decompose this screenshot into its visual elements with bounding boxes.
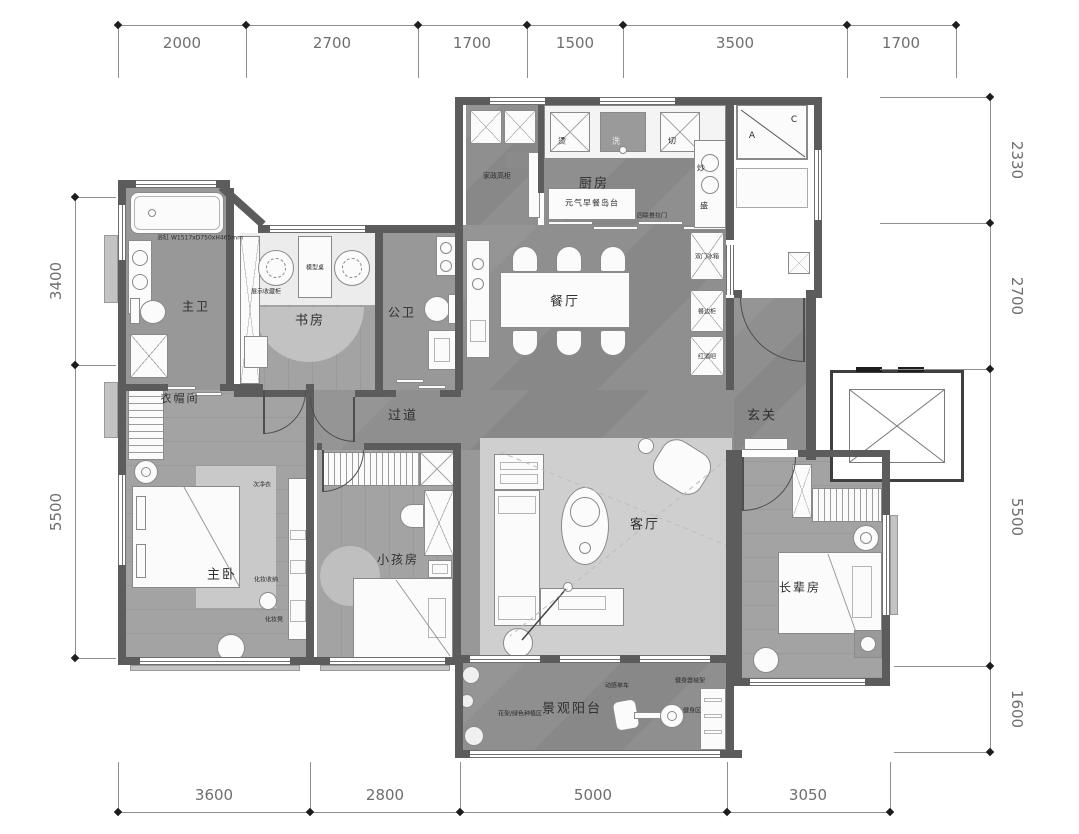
label-makeup-storage: 化妆收纳 bbox=[254, 575, 278, 584]
burner bbox=[701, 176, 719, 194]
water-bar-shelf bbox=[470, 320, 486, 342]
elders-door-leaf bbox=[742, 457, 744, 511]
kids-door-leaf bbox=[322, 450, 324, 492]
label-station-iron: 烫 bbox=[558, 136, 566, 147]
dim-ext bbox=[310, 762, 311, 812]
side-table bbox=[638, 438, 654, 454]
dim-tick bbox=[71, 193, 79, 201]
exterior-sill bbox=[320, 665, 450, 671]
sofa-cushion bbox=[498, 596, 536, 620]
media-drawer bbox=[500, 462, 538, 470]
makeup-stool bbox=[259, 592, 277, 610]
pillow bbox=[136, 496, 146, 530]
shoe-bench bbox=[744, 438, 788, 450]
dim-tick bbox=[114, 808, 122, 816]
dim-tick bbox=[71, 654, 79, 662]
plant-pot bbox=[462, 666, 480, 684]
dim-tick bbox=[306, 808, 314, 816]
dim-ext bbox=[460, 762, 461, 812]
dim-tick bbox=[952, 21, 960, 29]
label-plant-zone: 花架/绿色种植区 bbox=[498, 709, 542, 718]
window bbox=[330, 657, 445, 665]
room-label-living-room: 客厅 bbox=[630, 514, 660, 533]
wall bbox=[726, 298, 734, 390]
label-model-table: 模型桌 bbox=[306, 263, 324, 272]
shower-tray bbox=[434, 338, 450, 362]
dim-tick bbox=[114, 21, 122, 29]
plant-pot bbox=[860, 636, 876, 652]
rattan-chair-inner bbox=[342, 258, 362, 278]
toilet-bowl bbox=[424, 296, 450, 322]
dim-ext bbox=[623, 25, 624, 78]
wall bbox=[734, 290, 742, 298]
dim-label: 3050 bbox=[789, 786, 827, 804]
kitchen-sliding-door-panel bbox=[548, 221, 593, 225]
shower bbox=[130, 334, 168, 378]
dim-label: 1500 bbox=[556, 34, 594, 52]
dim-label: 3600 bbox=[195, 786, 233, 804]
kids-pillow bbox=[428, 598, 446, 638]
basin bbox=[440, 260, 452, 272]
window bbox=[750, 678, 865, 686]
label-sliding-door: 四联推拉门 bbox=[637, 211, 667, 220]
egg-table-inner bbox=[570, 497, 600, 527]
dressing-drawer bbox=[290, 530, 306, 540]
study-door-leaf bbox=[353, 397, 355, 442]
dim-tick bbox=[986, 662, 994, 670]
dim-label: 3500 bbox=[716, 34, 754, 52]
dim-tick bbox=[843, 21, 851, 29]
washer bbox=[550, 112, 590, 152]
elders-pillow bbox=[852, 566, 872, 618]
dim-ext bbox=[880, 369, 990, 370]
dim-label: 5000 bbox=[574, 786, 612, 804]
wall bbox=[317, 443, 322, 450]
kitchen-sliding-door-panel bbox=[593, 226, 638, 230]
room-label-study: 书房 bbox=[295, 310, 325, 329]
window bbox=[136, 180, 216, 188]
dim-tick bbox=[71, 361, 79, 369]
shoe-cabinet bbox=[128, 388, 164, 460]
window bbox=[270, 225, 365, 233]
label-station-serve: 盛 bbox=[700, 201, 708, 212]
plant-pot bbox=[464, 726, 484, 746]
dim-ext bbox=[75, 197, 116, 198]
dim-ext bbox=[527, 25, 528, 78]
dim-label: 1700 bbox=[453, 34, 491, 52]
dining-chair bbox=[600, 330, 626, 356]
dim-line-right bbox=[990, 97, 991, 752]
label-fridge: 双门冰箱 bbox=[695, 252, 719, 261]
wall bbox=[453, 443, 461, 658]
dim-ext bbox=[847, 25, 848, 78]
room-label-kids-room: 小孩房 bbox=[377, 551, 419, 568]
dim-label: 2000 bbox=[163, 34, 201, 52]
kitchen-sliding-door-panel bbox=[638, 221, 683, 225]
wall bbox=[726, 450, 742, 685]
window bbox=[882, 515, 890, 615]
window-sliding-door bbox=[470, 655, 540, 663]
dim-tick bbox=[523, 21, 531, 29]
guest-bath-sliding-door bbox=[418, 385, 446, 389]
elevator-door-mark bbox=[856, 367, 882, 372]
fitness-rack-bar bbox=[704, 698, 722, 702]
laundry-machine bbox=[470, 110, 502, 144]
room-label-master-bath: 主卫 bbox=[182, 298, 210, 315]
dim-label: 5500 bbox=[1008, 498, 1026, 536]
egg-table-small bbox=[579, 542, 591, 554]
dim-ext bbox=[880, 97, 990, 98]
exterior-panel bbox=[104, 235, 118, 303]
dim-ext bbox=[956, 25, 957, 78]
basin bbox=[472, 278, 484, 290]
wall bbox=[306, 384, 314, 658]
media-drawer bbox=[500, 474, 538, 484]
ac-platform bbox=[736, 104, 808, 160]
label-station-fry: 炒 bbox=[697, 163, 705, 174]
label-laundry-clothes: 次净衣 bbox=[253, 480, 271, 489]
faucet bbox=[619, 146, 627, 154]
study-cabinet bbox=[244, 336, 268, 368]
fitness-rack-bar bbox=[704, 714, 722, 718]
label-station-cut: 切 bbox=[668, 136, 676, 147]
sofa-cushion bbox=[498, 496, 536, 514]
floor-lamp-base bbox=[503, 628, 533, 658]
toilet-tank bbox=[130, 298, 140, 324]
window bbox=[118, 205, 126, 260]
dim-label: 2800 bbox=[366, 786, 404, 804]
sink bbox=[132, 274, 148, 290]
dim-tick bbox=[414, 21, 422, 29]
label-bathtub-spec: 浴缸 W1517xD750xH465mm bbox=[157, 233, 243, 242]
room-label-cloakroom: 衣帽间 bbox=[161, 390, 200, 406]
dining-chair bbox=[512, 330, 538, 356]
window bbox=[490, 97, 545, 105]
dim-label: 3400 bbox=[47, 262, 65, 300]
wall bbox=[726, 105, 734, 240]
dining-chair bbox=[600, 246, 626, 272]
window bbox=[600, 97, 675, 105]
basin bbox=[440, 242, 452, 254]
room-label-elders-room: 长辈房 bbox=[779, 579, 821, 596]
room-label-balcony: 景观阳台 bbox=[542, 698, 602, 717]
dim-label: 1700 bbox=[882, 34, 920, 52]
dim-label: 5500 bbox=[47, 493, 65, 531]
window bbox=[118, 475, 126, 565]
dining-chair bbox=[556, 246, 582, 272]
laundry-machine bbox=[504, 110, 536, 144]
dim-ext bbox=[75, 658, 116, 659]
floor-lamp-shade bbox=[563, 582, 573, 592]
window-balcony-rail bbox=[470, 750, 720, 758]
dim-ext bbox=[246, 25, 247, 78]
label-display-cabinet: 展示收藏柜 bbox=[251, 287, 281, 296]
wall bbox=[375, 233, 383, 390]
dim-ext bbox=[894, 752, 990, 753]
label-ac-a: A bbox=[749, 131, 755, 141]
media-cabinet bbox=[494, 454, 544, 490]
window bbox=[140, 657, 290, 665]
exterior-sill bbox=[130, 665, 300, 671]
pillow bbox=[136, 544, 146, 578]
rattan-chair-inner bbox=[266, 258, 286, 278]
wall bbox=[440, 390, 461, 397]
dim-tick bbox=[242, 21, 250, 29]
room-label-dining: 餐厅 bbox=[550, 291, 580, 310]
label-fitness-zone: 健身区 bbox=[683, 706, 701, 715]
flue-box bbox=[788, 252, 810, 274]
sink bbox=[132, 250, 148, 266]
dim-tick bbox=[456, 808, 464, 816]
bedside-lamp bbox=[860, 532, 872, 544]
fitness-rack-bar bbox=[704, 730, 722, 734]
wall bbox=[798, 450, 890, 457]
dim-label: 2330 bbox=[1008, 141, 1026, 179]
kids-wardrobe-cabinet bbox=[420, 452, 454, 486]
round-table-inner bbox=[141, 467, 151, 477]
dim-tick bbox=[619, 21, 627, 29]
wall bbox=[455, 97, 463, 390]
kids-desk-top bbox=[432, 564, 448, 574]
elders-wardrobe bbox=[812, 488, 882, 522]
dim-line-bottom bbox=[118, 812, 890, 813]
rocking-chair bbox=[753, 647, 779, 673]
window bbox=[814, 150, 822, 220]
toilet-bowl bbox=[140, 300, 166, 324]
window-sliding-door bbox=[640, 655, 710, 663]
wall bbox=[806, 298, 816, 460]
window-sliding-door bbox=[560, 655, 620, 663]
label-sideboard: 餐边柜 bbox=[698, 307, 716, 316]
kids-chair bbox=[400, 504, 424, 528]
dressing-drawer bbox=[290, 560, 306, 574]
spin-bike-hub bbox=[667, 711, 677, 721]
label-equipment-rack: 健身器械架 bbox=[675, 676, 705, 685]
dim-tick bbox=[723, 808, 731, 816]
entry-door-leaf bbox=[803, 298, 805, 362]
dining-chair bbox=[556, 330, 582, 356]
label-spin-bike: 动感单车 bbox=[605, 681, 629, 690]
master-door-leaf bbox=[263, 391, 265, 434]
label-ac-c: C bbox=[791, 115, 797, 125]
bathtub-inner bbox=[134, 196, 220, 230]
guest-bath-sliding-door bbox=[396, 379, 424, 383]
utility-shelf bbox=[736, 168, 808, 208]
exterior-sill bbox=[890, 515, 898, 615]
dim-ext bbox=[418, 25, 419, 78]
dim-tick bbox=[986, 365, 994, 373]
wall bbox=[364, 443, 461, 450]
label-wine-bar: 红酒吧 bbox=[698, 352, 716, 361]
kids-bookshelf bbox=[424, 490, 454, 556]
room-label-foyer: 玄关 bbox=[747, 405, 777, 424]
dim-tick bbox=[986, 219, 994, 227]
floor-plan: 厨房 餐厅 主卫 书房 公卫 衣帽间 过道 玄关 主卧 小孩房 客厅 长辈房 景… bbox=[0, 0, 1079, 834]
elders-cabinet bbox=[792, 464, 812, 518]
wall bbox=[806, 290, 814, 298]
dim-line-left bbox=[75, 197, 76, 658]
dim-tick bbox=[886, 808, 894, 816]
basin bbox=[472, 258, 484, 270]
dim-tick bbox=[986, 748, 994, 756]
exterior-panel bbox=[104, 382, 118, 438]
window bbox=[726, 245, 734, 295]
wall bbox=[220, 384, 263, 391]
dim-ext bbox=[118, 25, 119, 78]
label-station-wash: 洗 bbox=[612, 136, 620, 147]
wall bbox=[455, 658, 463, 758]
wall bbox=[538, 105, 544, 193]
dim-label: 1600 bbox=[1008, 690, 1026, 728]
dim-tick bbox=[986, 93, 994, 101]
room-label-kitchen: 厨房 bbox=[579, 173, 609, 192]
dim-ext bbox=[727, 762, 728, 812]
label-makeup-stool: 化妆凳 bbox=[265, 615, 283, 624]
dim-ext bbox=[118, 762, 119, 812]
dim-ext bbox=[75, 365, 116, 366]
dim-ext bbox=[894, 666, 990, 667]
label-breakfast-island: 元气早餐岛台 bbox=[565, 198, 619, 209]
wall bbox=[726, 658, 734, 758]
tv-unit bbox=[558, 596, 606, 610]
wall bbox=[355, 390, 396, 397]
dim-ext bbox=[880, 223, 990, 224]
room-label-master-bedroom: 主卧 bbox=[207, 564, 237, 583]
dressing-drawer bbox=[290, 600, 306, 622]
label-housekeeping-cabinet: 家政高柜 bbox=[483, 171, 511, 181]
room-label-guest-bath: 公卫 bbox=[388, 304, 416, 321]
dim-label: 2700 bbox=[1008, 277, 1026, 315]
dining-chair bbox=[512, 246, 538, 272]
wall bbox=[226, 188, 234, 390]
dim-label: 2700 bbox=[313, 34, 351, 52]
dim-ext bbox=[890, 762, 891, 812]
room-label-hallway: 过道 bbox=[388, 405, 418, 424]
